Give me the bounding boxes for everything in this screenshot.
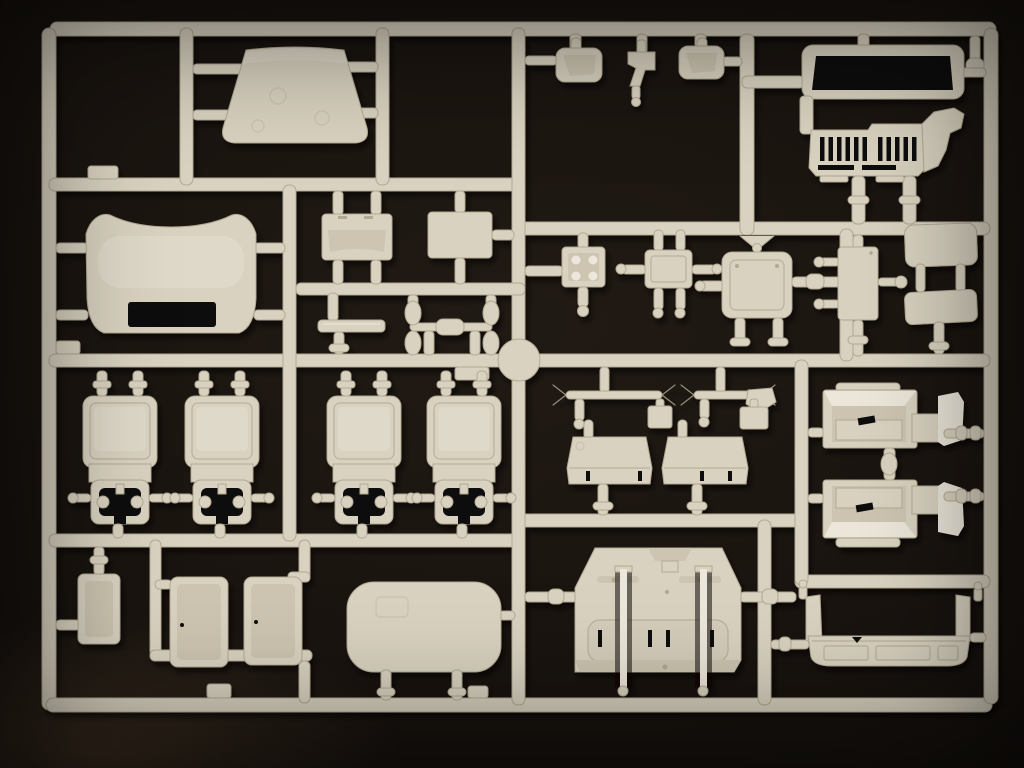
part-roof-panel	[347, 582, 515, 700]
part-step-unit-1	[808, 383, 984, 480]
part-door-panel	[814, 235, 907, 356]
sprue-photo	[0, 0, 1024, 768]
part-front-bumper	[771, 580, 986, 666]
part-floor-panel	[525, 548, 796, 696]
part-mirror-right	[679, 38, 742, 79]
part-tabbed-plate	[616, 230, 722, 318]
part-axle-winged	[405, 295, 499, 355]
part-sill-strip	[318, 293, 385, 354]
part-tray-2	[244, 572, 310, 665]
part-seat-back-1	[68, 371, 172, 538]
part-dash-panel	[322, 191, 392, 284]
part-flat-panel	[428, 191, 514, 284]
part-mirror-left	[525, 38, 602, 82]
part-seat-cushion-2	[662, 420, 748, 515]
part-roof-cap	[193, 47, 378, 143]
part-cab-rear-panel	[56, 214, 285, 333]
part-step-unit-2	[808, 480, 984, 547]
part-cab-front	[800, 45, 964, 224]
part-sun-visor-2	[904, 264, 978, 354]
part-seat-back-2	[170, 371, 274, 538]
part-small-bracket	[628, 40, 655, 107]
part-seat-back-3	[312, 371, 416, 538]
part-seat-back-4	[412, 371, 516, 538]
sprue-sheet	[0, 0, 1024, 768]
part-box-four-holes	[525, 233, 605, 317]
gear-lever-1	[615, 566, 632, 696]
part-seat-cushion-1	[567, 420, 652, 515]
part-stowage-box	[56, 547, 120, 644]
part-sun-visor-1	[904, 223, 977, 267]
part-radiator	[695, 236, 842, 346]
gear-lever-2	[695, 566, 712, 696]
